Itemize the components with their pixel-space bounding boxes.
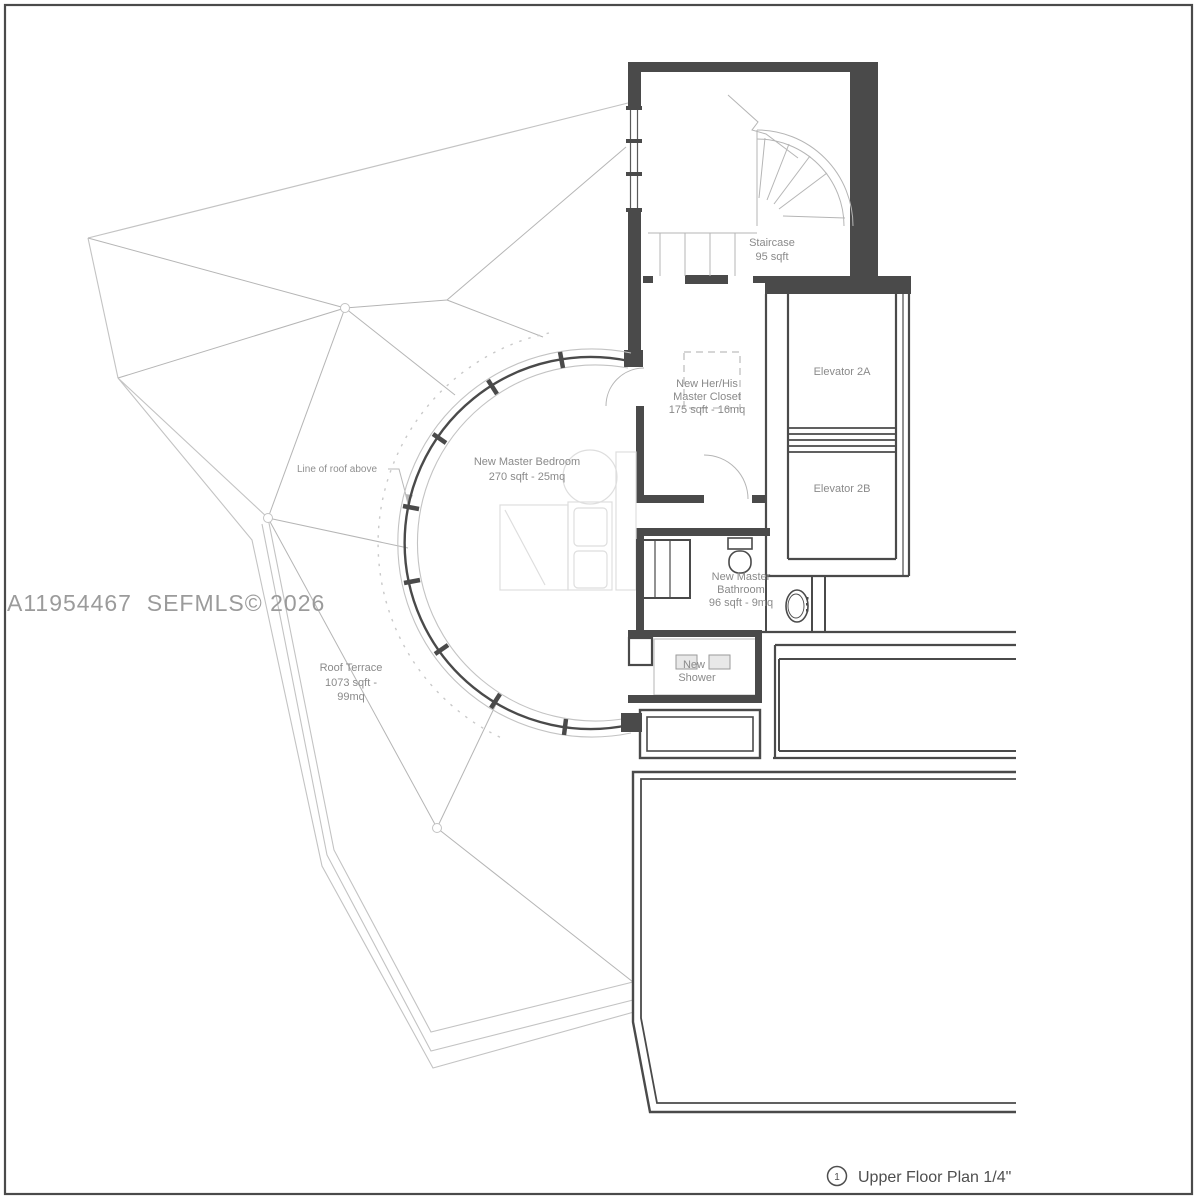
roof-note-label: Line of roof above: [297, 464, 377, 475]
drawing-title: Upper Floor Plan 1/4": [858, 1169, 1011, 1186]
shower-fixture: [709, 655, 730, 669]
shower-label-1: New: [683, 659, 705, 671]
elevator-2a-label: Elevator 2A: [814, 366, 872, 378]
bathroom-label-3: 96 sqft - 9mq: [709, 597, 773, 609]
elevator-2b-label: Elevator 2B: [814, 483, 871, 495]
title-marker-number: 1: [834, 1172, 840, 1183]
staircase-label: Staircase: [749, 237, 795, 249]
terrace-label-2: 1073 sqft -: [325, 677, 377, 689]
closet-label-3: 175 sqft - 16mq: [669, 404, 745, 416]
shower-label-2: Shower: [678, 672, 716, 684]
terrace-vertex-dot: [433, 824, 442, 833]
closet-label-2: Master Closet: [673, 391, 741, 403]
terrace-vertex-dot: [341, 304, 350, 313]
mls-watermark: A11954467 SEFMLS© 2026: [7, 590, 325, 616]
floor-plan-page: Staircase 95 sqft Elevator 2A Elevator 2…: [0, 0, 1197, 1200]
bathroom-label-2: Bathroom: [717, 584, 765, 596]
bedroom-label-1: New Master Bedroom: [474, 456, 580, 468]
terrace-vertex-dot: [264, 514, 273, 523]
staircase-area: 95 sqft: [755, 251, 788, 263]
closet-label-1: New Her/His: [676, 378, 738, 390]
bedroom-label-2: 270 sqft - 25mq: [489, 471, 565, 483]
floor-plan-drawing: Staircase 95 sqft Elevator 2A Elevator 2…: [0, 0, 1197, 1200]
terrace-label-3: 99mq: [337, 691, 365, 703]
terrace-label-1: Roof Terrace: [320, 662, 383, 674]
bathroom-label-1: New Master: [712, 571, 771, 583]
